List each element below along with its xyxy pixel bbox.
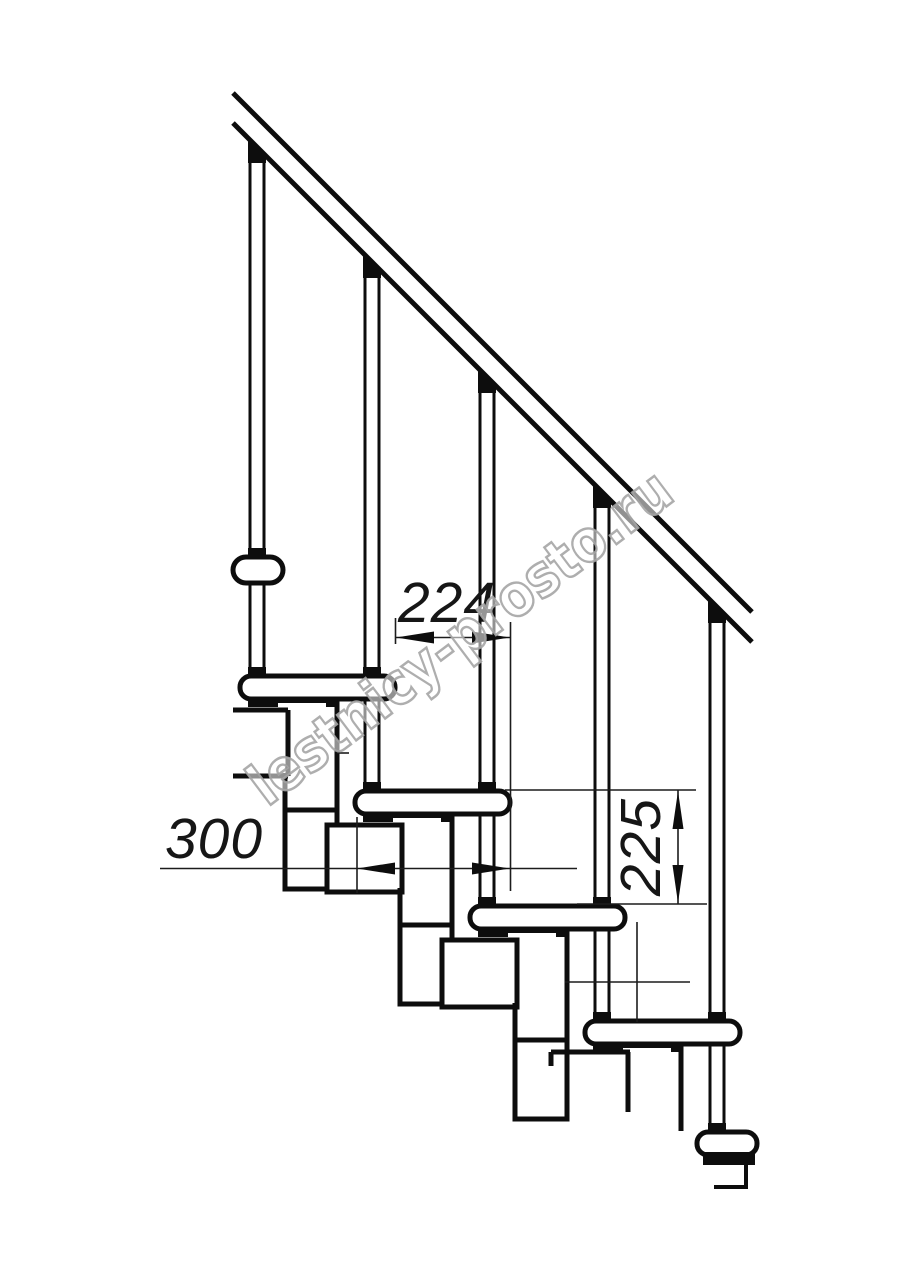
bracket-base (703, 1152, 755, 1165)
floor-base (697, 1132, 757, 1155)
floor-base-tail (714, 1165, 748, 1187)
arrowhead-right (472, 863, 510, 875)
dimension-label-225: 225 (609, 798, 673, 897)
bracket-3 (478, 927, 568, 937)
foot (363, 782, 381, 791)
arrowhead-up (673, 791, 684, 829)
bracket-4 (593, 1042, 683, 1052)
foot (478, 897, 496, 906)
dimension-label-300: 300 (165, 807, 263, 871)
foot (708, 1123, 726, 1132)
tread-1 (240, 676, 395, 699)
foot (248, 548, 266, 557)
foot (248, 667, 266, 676)
landing-pill (233, 557, 283, 583)
staircase-drawing-canvas: 224 300 225 (0, 0, 914, 1280)
tread-4 (585, 1021, 740, 1044)
dimension-225: 225 (505, 790, 707, 904)
bracket-2 (363, 812, 453, 822)
baluster-3 (480, 386, 494, 906)
module-lower-3 (515, 928, 567, 1119)
foot (708, 1012, 726, 1021)
foot (363, 667, 381, 676)
technical-drawing-page: 224 300 225 lestnicy-prosto.ru (0, 0, 914, 1280)
baluster-1 (250, 156, 264, 676)
foot (593, 1012, 611, 1021)
baluster-4 (595, 501, 609, 1021)
tread-3 (470, 906, 625, 929)
arrowhead-down (673, 865, 684, 903)
foot (478, 782, 496, 791)
baluster-2 (365, 271, 379, 791)
baluster-5 (710, 616, 724, 1133)
dimension-label-224: 224 (397, 571, 496, 635)
module-upper-1 (233, 710, 288, 776)
module-upper-3 (442, 940, 517, 1007)
bracket-1 (248, 697, 338, 707)
tread-2 (355, 791, 510, 814)
module-upper-2 (327, 825, 402, 892)
